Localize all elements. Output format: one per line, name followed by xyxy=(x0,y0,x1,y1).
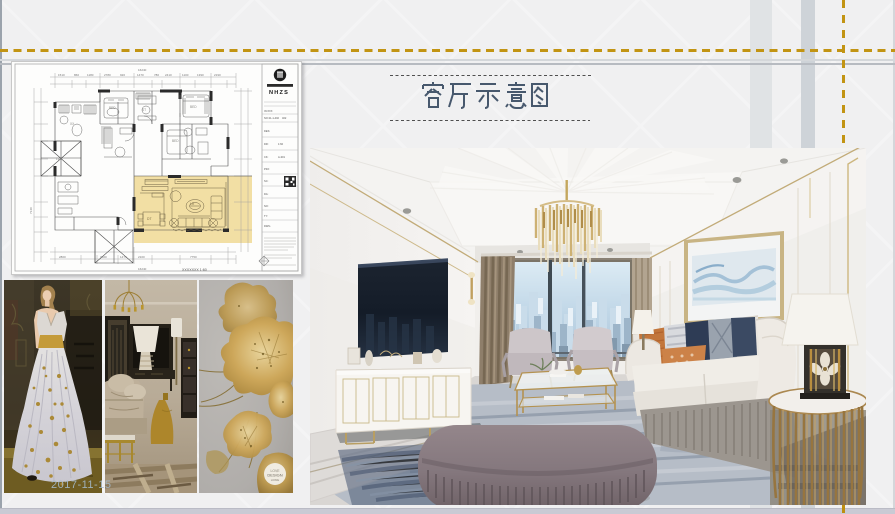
svg-text:7750: 7750 xyxy=(190,255,197,259)
svg-text:1:60: 1:60 xyxy=(278,142,284,146)
svg-text:780: 780 xyxy=(154,73,159,77)
svg-text:2410: 2410 xyxy=(165,73,172,77)
svg-text:TY:: TY: xyxy=(264,214,268,218)
svg-text:NO:: NO: xyxy=(264,204,269,208)
svg-text:2780: 2780 xyxy=(104,73,111,77)
svg-text:XX: XX xyxy=(70,122,75,126)
svg-text:1475: 1475 xyxy=(120,255,127,259)
svg-text:860: 860 xyxy=(74,73,79,77)
svg-text:DESIGN: DESIGN xyxy=(267,473,282,478)
svg-text:PRJ:: PRJ: xyxy=(264,167,270,171)
svg-text:402: 402 xyxy=(282,116,287,120)
svg-text:DR:: DR: xyxy=(264,142,269,146)
svg-text:BED: BED xyxy=(190,105,197,109)
svg-text:DWG: DWG xyxy=(264,224,270,228)
svg-text:7140: 7140 xyxy=(29,207,33,214)
svg-text:CK:: CK: xyxy=(264,155,269,159)
svg-text:2100: 2100 xyxy=(138,255,145,259)
svg-text:1180: 1180 xyxy=(87,73,94,77)
svg-text:BED: BED xyxy=(172,139,179,143)
svg-text:16240: 16240 xyxy=(138,267,147,271)
svg-text:XXXXXXX 1:60: XXXXXXX 1:60 xyxy=(182,268,207,272)
svg-text:SC:: SC: xyxy=(264,179,269,183)
svg-text:ST: ST xyxy=(142,108,146,112)
svg-text:16240: 16240 xyxy=(138,68,147,72)
svg-text:2190: 2190 xyxy=(214,73,221,77)
svg-text:2800: 2800 xyxy=(59,255,66,259)
svg-text:NO:21-1-402: NO:21-1-402 xyxy=(264,116,280,120)
svg-text:920: 920 xyxy=(120,73,125,77)
svg-text:LR: LR xyxy=(190,202,195,206)
svg-text:1100: 1100 xyxy=(182,73,189,77)
svg-text:DES:: DES: xyxy=(264,129,270,133)
svg-text:BED: BED xyxy=(109,106,116,110)
svg-text:1510: 1510 xyxy=(58,73,65,77)
svg-text:A-301: A-301 xyxy=(278,155,285,159)
svg-text:DT: DT xyxy=(147,217,152,221)
svg-text:1470: 1470 xyxy=(137,73,144,77)
svg-text:DA:: DA: xyxy=(264,192,269,196)
svg-text:1390: 1390 xyxy=(197,73,204,77)
svg-text:NHZS: NHZS xyxy=(269,90,289,96)
svg-text:HOME: HOME xyxy=(271,478,280,482)
svg-text:IN:XXX: IN:XXX xyxy=(264,109,273,113)
svg-text:3600: 3600 xyxy=(100,255,107,259)
